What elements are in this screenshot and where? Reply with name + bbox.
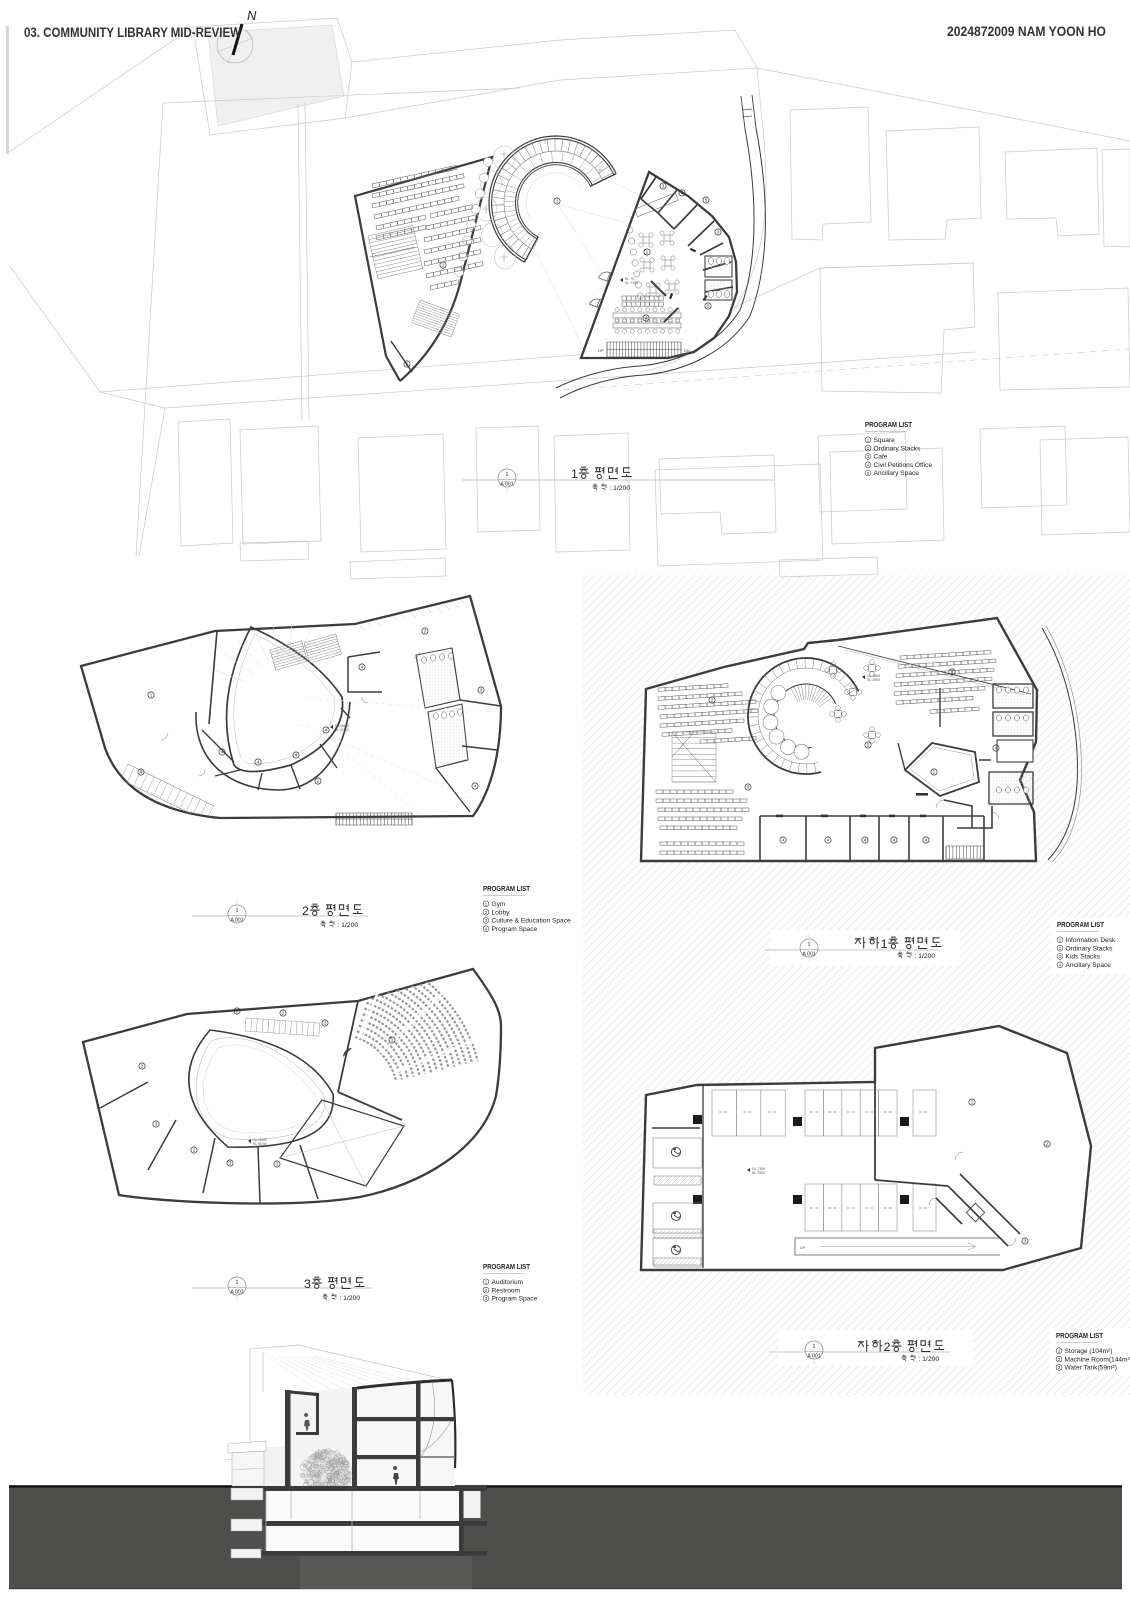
- svg-text:1: 1: [971, 1100, 974, 1105]
- svg-text:2: 2: [951, 670, 954, 675]
- svg-text:Ordinary Stacks: Ordinary Stacks: [874, 445, 922, 452]
- svg-text:PROGRAM LIST: PROGRAM LIST: [1057, 920, 1104, 929]
- svg-text:PROGRAM LIST: PROGRAM LIST: [483, 1262, 530, 1271]
- svg-text:Culture & Education Space: Culture & Education Space: [492, 918, 572, 925]
- svg-text:SL-7500: SL-7500: [752, 1171, 765, 1175]
- svg-text:1: 1: [506, 472, 509, 478]
- svg-text:4: 4: [827, 838, 830, 843]
- svg-text:A 001: A 001: [802, 952, 815, 958]
- svg-text:3: 3: [1024, 1239, 1027, 1244]
- svg-text:4: 4: [995, 746, 998, 751]
- svg-text:Civil Petitions Office: Civil Petitions Office: [874, 462, 933, 469]
- svg-text:4: 4: [925, 838, 928, 843]
- svg-text:A 001: A 001: [230, 1290, 243, 1296]
- svg-text:DN: DN: [684, 348, 690, 353]
- svg-text:4: 4: [474, 784, 477, 789]
- svg-text:SL+8700: SL+8700: [253, 1142, 267, 1146]
- svg-text:: 1/200: : 1/200: [339, 1295, 360, 1302]
- svg-text:1: 1: [813, 1344, 816, 1350]
- svg-text:2: 2: [193, 1148, 196, 1153]
- svg-text:Kids Stacks: Kids Stacks: [1066, 954, 1101, 961]
- svg-text:PROGRAM LIST: PROGRAM LIST: [483, 884, 530, 893]
- svg-text:SL+6750: SL+6750: [335, 728, 349, 732]
- svg-text:SL-3900: SL-3900: [867, 678, 880, 682]
- svg-text:: 1/200: : 1/200: [337, 922, 358, 929]
- svg-text:5: 5: [867, 743, 870, 748]
- svg-text:Ancillary Space: Ancillary Space: [874, 470, 920, 477]
- svg-text:2024872009 NAM YOON HO: 2024872009 NAM YOON HO: [947, 24, 1106, 40]
- svg-text:UP: UP: [800, 1246, 806, 1250]
- svg-text:Square: Square: [874, 437, 896, 444]
- svg-text:3: 3: [155, 1122, 158, 1127]
- svg-text:1: 1: [556, 199, 559, 204]
- svg-text:2: 2: [711, 698, 714, 703]
- svg-text:2: 2: [884, 1340, 891, 1354]
- svg-text:PROGRAM LIST: PROGRAM LIST: [1056, 1331, 1103, 1340]
- svg-text:2: 2: [424, 629, 427, 634]
- svg-text:Machine Room(144m²: Machine Room(144m²: [1065, 1356, 1130, 1363]
- svg-text:1: 1: [571, 467, 578, 481]
- svg-text:4: 4: [140, 770, 143, 775]
- svg-text:3: 3: [304, 1277, 311, 1291]
- svg-text:UP: UP: [598, 348, 604, 353]
- svg-text:3: 3: [717, 230, 720, 235]
- svg-text:5: 5: [705, 198, 708, 203]
- svg-text:1: 1: [646, 250, 649, 255]
- svg-text:A 001: A 001: [500, 482, 513, 488]
- svg-text:5: 5: [707, 304, 710, 309]
- svg-text:1: 1: [236, 1280, 239, 1286]
- svg-text:1: 1: [391, 1038, 394, 1043]
- svg-text:3: 3: [747, 785, 750, 790]
- svg-text:2: 2: [1046, 1142, 1049, 1147]
- svg-text:2: 2: [302, 904, 309, 918]
- svg-text:2: 2: [282, 1011, 285, 1016]
- svg-text:1: 1: [236, 908, 239, 914]
- svg-text:3: 3: [276, 1162, 279, 1167]
- svg-text:Cafe: Cafe: [874, 454, 888, 461]
- svg-text:1: 1: [150, 693, 153, 698]
- svg-text:2: 2: [324, 1021, 327, 1026]
- svg-text:4: 4: [893, 838, 896, 843]
- svg-text:N: N: [247, 8, 257, 23]
- svg-text:PROGRAM LIST: PROGRAM LIST: [865, 420, 912, 429]
- svg-text:SL +150: SL +150: [625, 281, 638, 285]
- svg-text:4: 4: [864, 838, 867, 843]
- svg-text:Restroom: Restroom: [492, 1287, 521, 1294]
- svg-text:Ordinary Stacks: Ordinary Stacks: [1066, 945, 1114, 952]
- svg-text:3: 3: [662, 184, 665, 189]
- svg-text:Water Tank(59m²): Water Tank(59m²): [1065, 1365, 1117, 1372]
- svg-text:1: 1: [808, 942, 811, 948]
- svg-text:: 1/200: : 1/200: [609, 485, 630, 492]
- svg-text:A 001: A 001: [230, 918, 243, 924]
- svg-text:3: 3: [229, 1161, 232, 1166]
- svg-text:Lobby: Lobby: [492, 909, 511, 916]
- svg-text:3: 3: [480, 688, 483, 693]
- svg-text:1: 1: [933, 770, 936, 775]
- svg-text:2: 2: [317, 779, 320, 784]
- svg-text:4: 4: [361, 665, 364, 670]
- svg-text:03. COMMUNITY LIBRARY MID-REVI: 03. COMMUNITY LIBRARY MID-REVIEW: [24, 25, 241, 41]
- svg-text:Information Desk: Information Desk: [1066, 937, 1117, 944]
- svg-text:3: 3: [141, 1064, 144, 1069]
- svg-text:4: 4: [295, 753, 298, 758]
- svg-text:5: 5: [406, 362, 409, 367]
- svg-text:4: 4: [325, 728, 328, 733]
- svg-text:Program Space: Program Space: [492, 926, 538, 933]
- svg-text:4: 4: [257, 760, 260, 765]
- svg-text:Gym: Gym: [492, 901, 506, 908]
- svg-text:Storage (104m²): Storage (104m²): [1065, 1348, 1113, 1355]
- svg-text:: 1/200: : 1/200: [918, 1356, 939, 1363]
- svg-text:1: 1: [881, 937, 888, 951]
- svg-text:4: 4: [782, 838, 785, 843]
- svg-text:2: 2: [236, 1009, 239, 1014]
- svg-text:Ancillary Space: Ancillary Space: [1066, 962, 1112, 969]
- svg-text:Program Space: Program Space: [492, 1296, 538, 1303]
- svg-text:2: 2: [442, 263, 445, 268]
- svg-text:Auditorium: Auditorium: [492, 1279, 524, 1286]
- svg-text:A 001: A 001: [807, 1354, 820, 1360]
- svg-text:4: 4: [221, 750, 224, 755]
- svg-text:: 1/200: : 1/200: [914, 953, 935, 960]
- svg-text:4: 4: [681, 191, 684, 196]
